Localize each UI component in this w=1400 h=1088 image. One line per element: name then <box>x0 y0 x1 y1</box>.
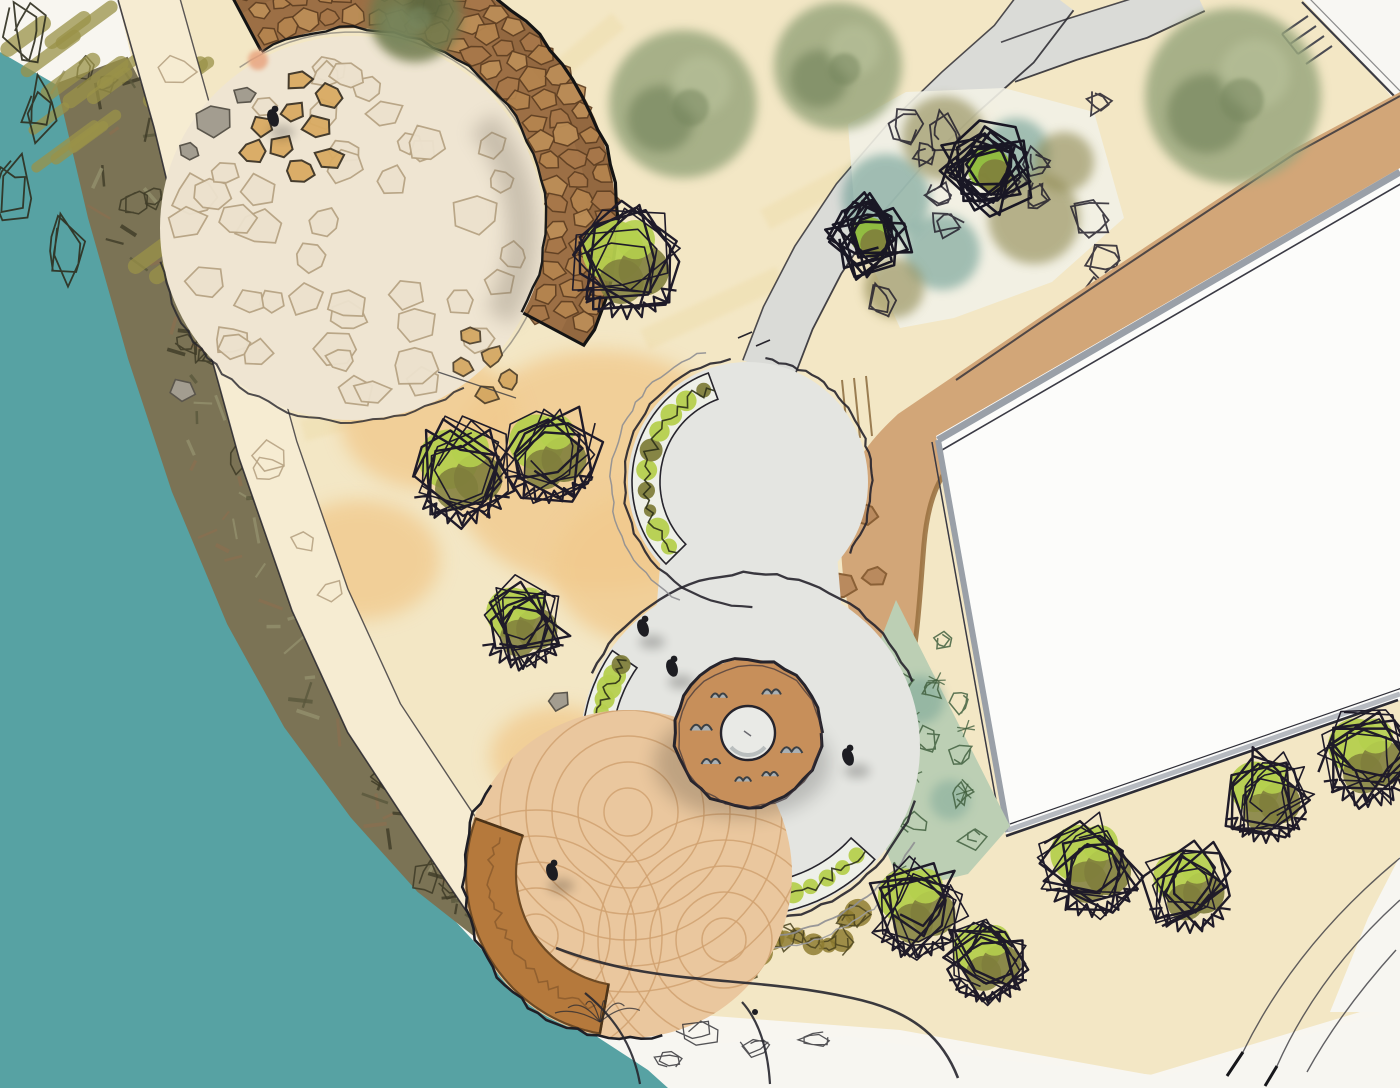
landscape-plan-sketch <box>0 0 1400 1088</box>
landscape-plan-stage <box>0 0 1400 1088</box>
